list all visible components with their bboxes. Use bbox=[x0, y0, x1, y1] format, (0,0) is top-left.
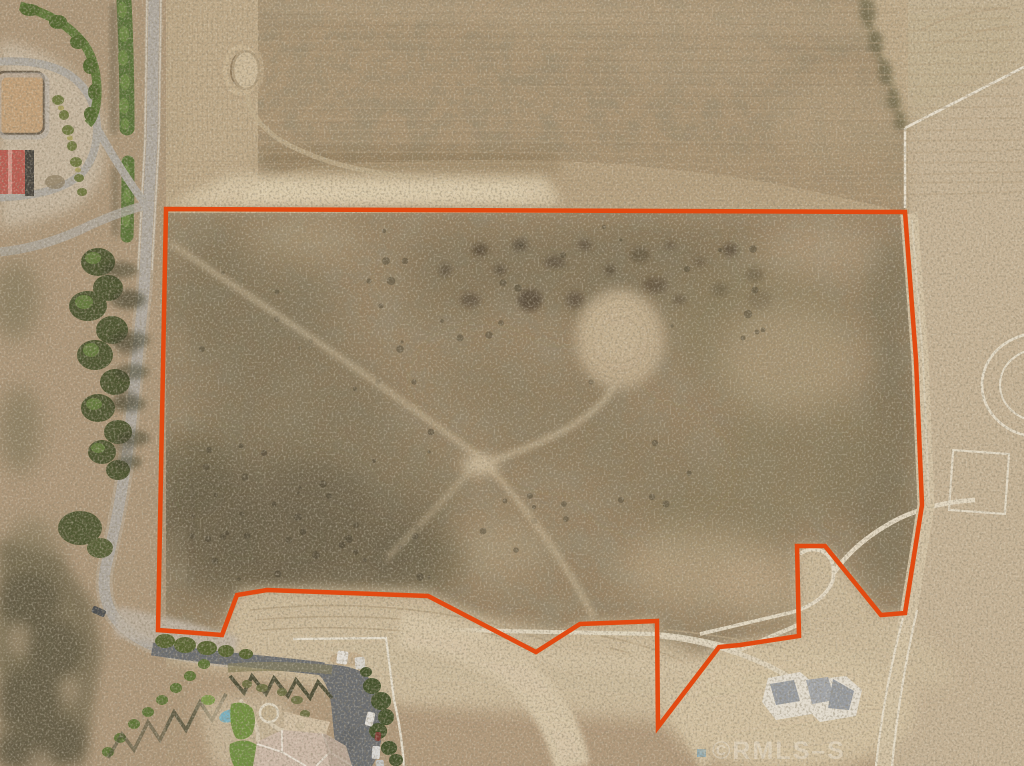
svg-text:©RMLS–S: ©RMLS–S bbox=[712, 737, 846, 765]
